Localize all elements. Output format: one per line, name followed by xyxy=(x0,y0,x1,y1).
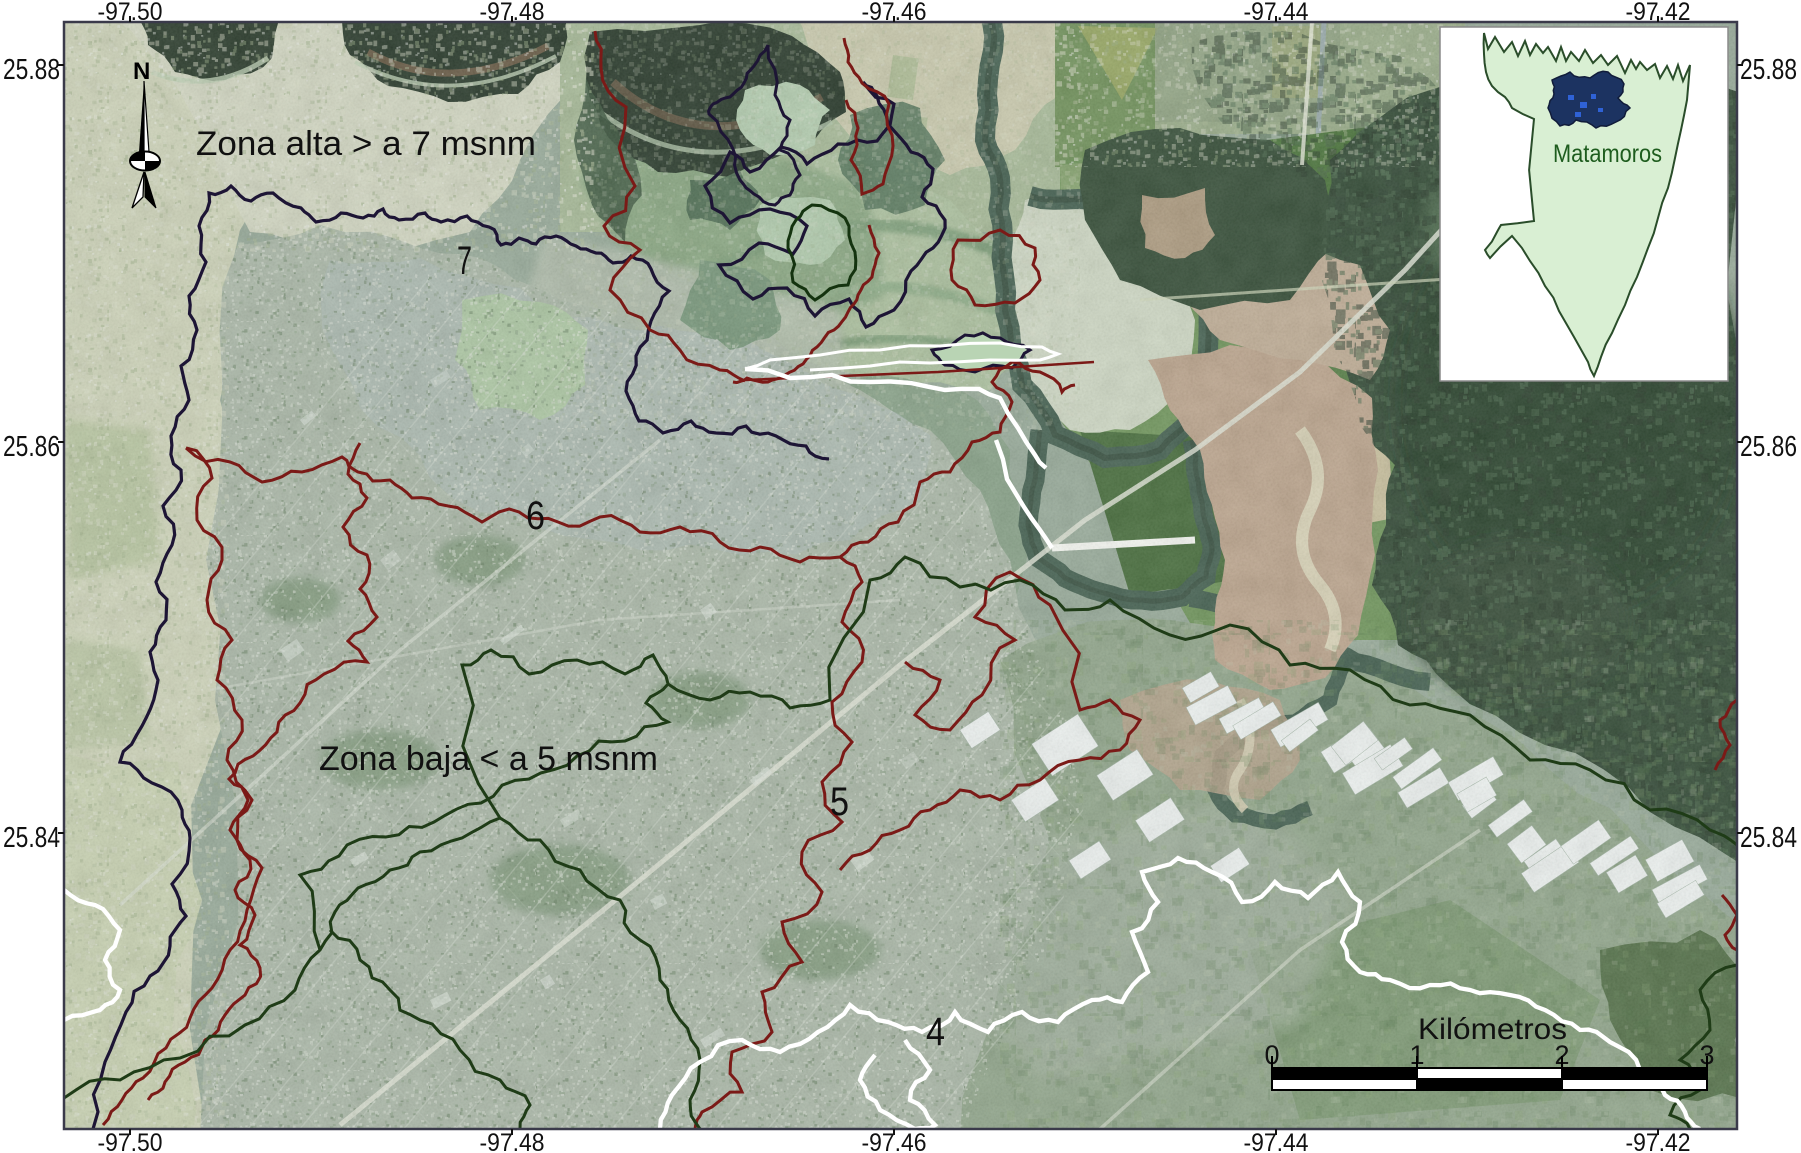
svg-text:25.84: 25.84 xyxy=(1740,822,1797,854)
svg-text:25.86: 25.86 xyxy=(3,431,60,463)
svg-text:-97.48: -97.48 xyxy=(480,0,545,26)
svg-text:-97.44: -97.44 xyxy=(1244,0,1309,26)
svg-text:-97.46: -97.46 xyxy=(862,0,927,26)
svg-text:5: 5 xyxy=(830,780,849,824)
svg-text:N: N xyxy=(133,58,150,85)
svg-text:6: 6 xyxy=(526,494,545,538)
svg-text:Matamoros: Matamoros xyxy=(1553,140,1662,168)
svg-text:25.86: 25.86 xyxy=(1740,431,1797,463)
svg-text:4: 4 xyxy=(926,1010,945,1054)
svg-text:-97.50: -97.50 xyxy=(98,0,163,26)
svg-text:Zona baja < a 5 msnm: Zona baja < a 5 msnm xyxy=(319,740,658,778)
svg-text:25.88: 25.88 xyxy=(1740,54,1797,86)
svg-text:25.84: 25.84 xyxy=(3,822,60,854)
svg-text:Zona alta > a 7 msnm: Zona alta > a 7 msnm xyxy=(196,125,536,163)
svg-text:25.88: 25.88 xyxy=(3,54,60,86)
svg-text:Kilómetros: Kilómetros xyxy=(1418,1013,1567,1046)
svg-text:7: 7 xyxy=(457,239,472,283)
svg-text:-97.42: -97.42 xyxy=(1626,0,1691,26)
